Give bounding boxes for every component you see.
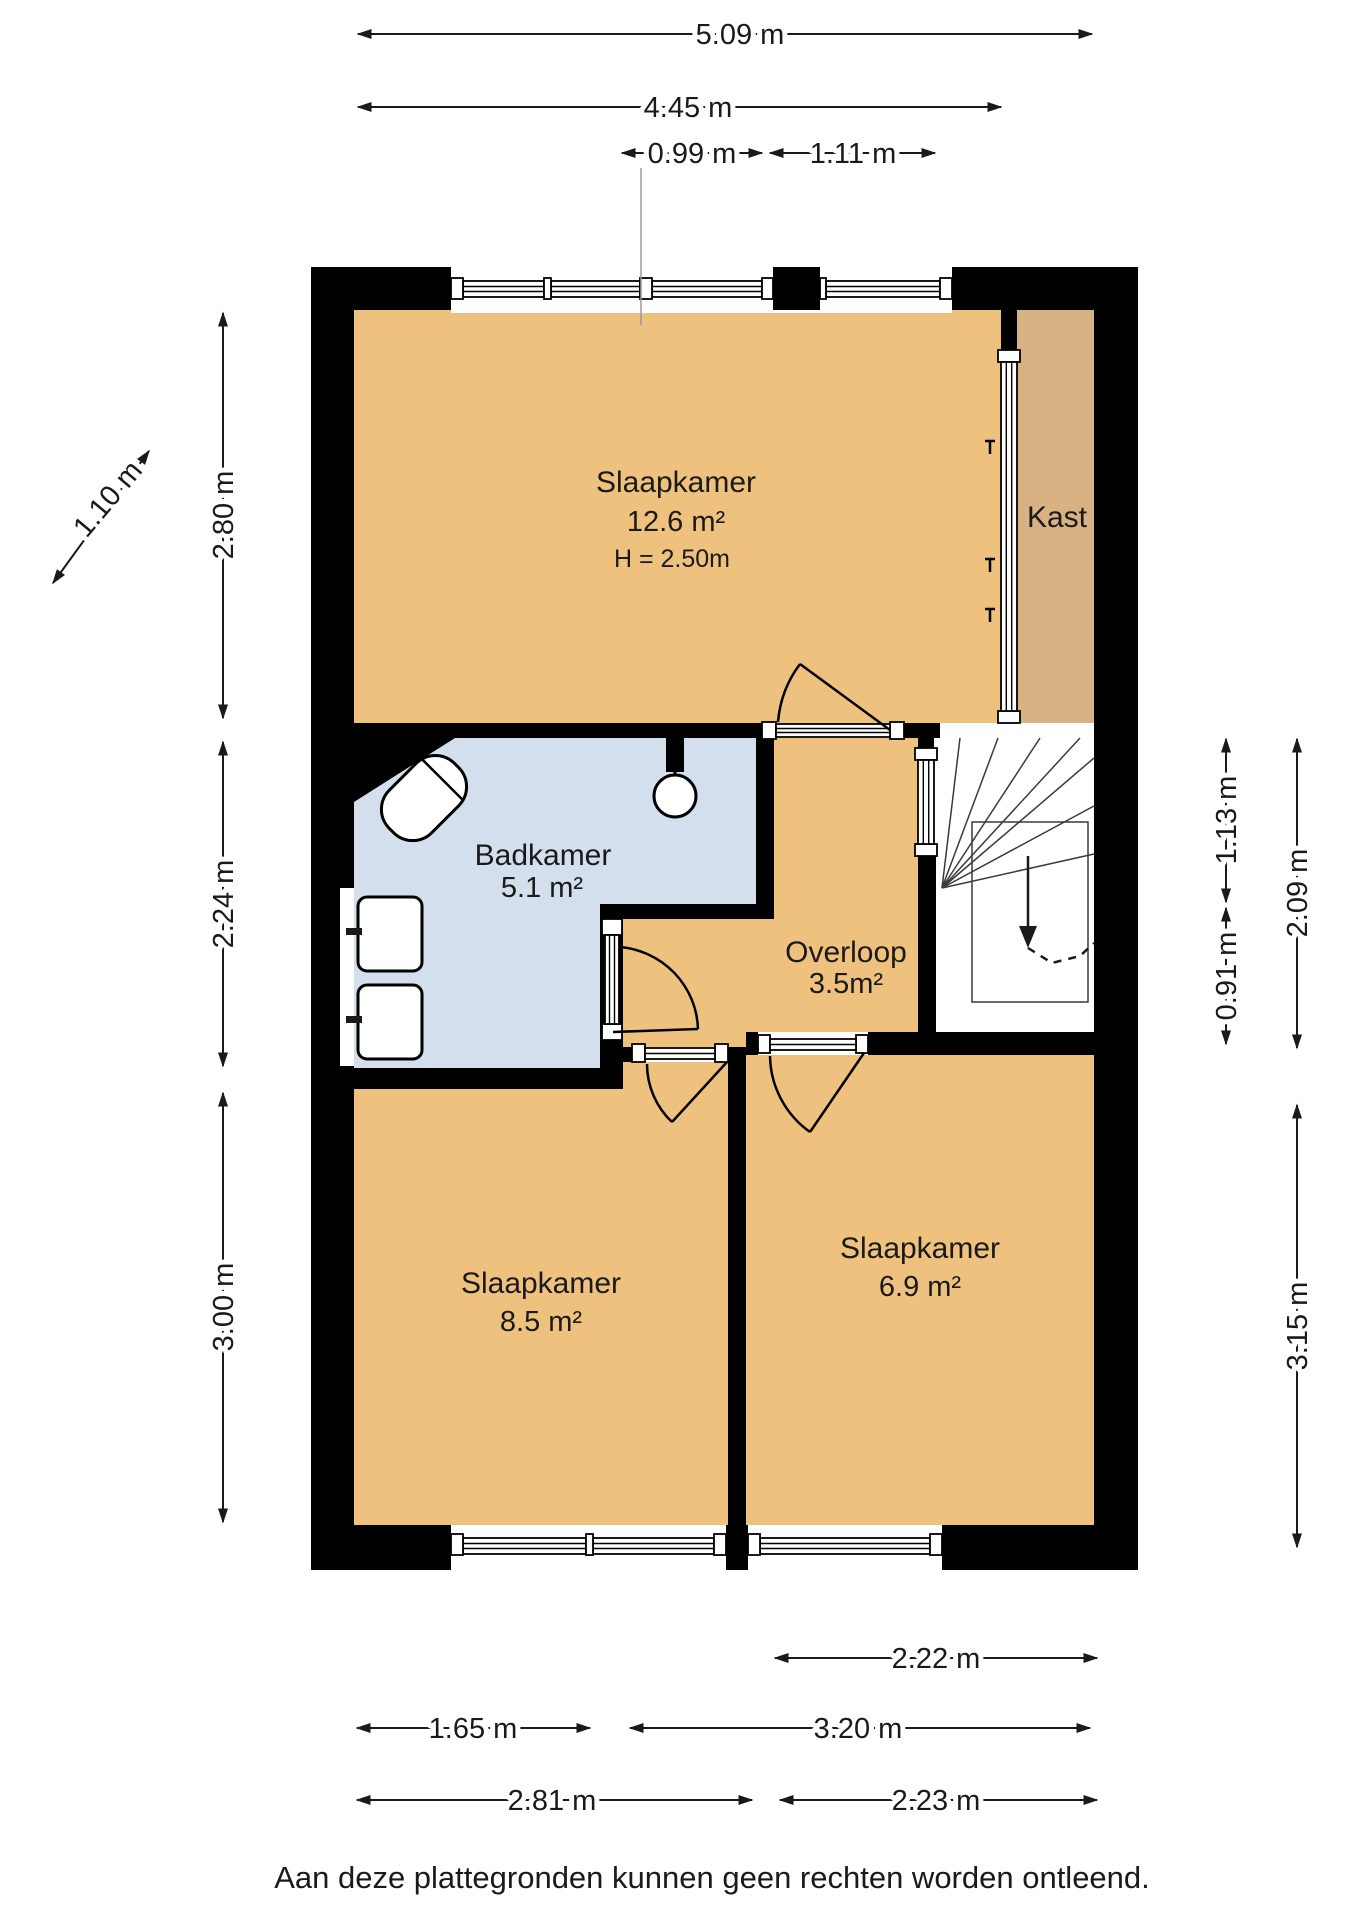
dimensions-top: 5.09 m 4.45 m 0.99 m 1.11 m (358, 19, 1092, 170)
floorplan-page: 5.09 m 4.45 m 0.99 m 1.11 m 2.80 m 2.24 … (0, 0, 1358, 1920)
top-window-band (451, 267, 952, 313)
floorplan-drawing: 5.09 m 4.45 m 0.99 m 1.11 m 2.80 m 2.24 … (0, 0, 1358, 1920)
dim-315: 3.15 m (1282, 1282, 1314, 1371)
dim-224: 2.24 m (208, 860, 240, 949)
dim-280: 2.80 m (208, 471, 240, 560)
wall-bathroom-jog (600, 904, 774, 919)
dimensions-left: 2.80 m 2.24 m 3.00 m 1.10 m (53, 313, 240, 1522)
area-slaapkamer-69: 6.9 m² (879, 1271, 962, 1303)
wall-mid-right (904, 723, 940, 738)
dimensions-bottom: 2.22 m 1.65 m 3.20 m 2.81 m 2.23 m (357, 1643, 1097, 1817)
label-overloop: Overloop (785, 936, 907, 969)
wall-bedroom-divider (728, 1047, 746, 1525)
area-badkamer: 5.1 m² (501, 872, 584, 904)
dim-091: 0.91 m (1211, 932, 1243, 1021)
dim-509: 5.09 m (696, 19, 785, 51)
wall-bathroom-bottom (311, 1068, 623, 1089)
dim-113: 1.13 m (1211, 776, 1243, 865)
shower-head (654, 775, 696, 817)
dim-222: 2.22 m (892, 1643, 981, 1675)
washbasin-1 (346, 897, 422, 971)
label-slaapkamer-85: Slaapkamer (461, 1267, 621, 1300)
dim-320: 3.20 m (814, 1713, 903, 1745)
dim-111: 1.11 m (810, 138, 897, 170)
dim-223: 2.23 m (892, 1785, 981, 1817)
dim-281: 2.81 m (508, 1785, 597, 1817)
disclaimer-text: Aan deze plattegronden kunnen geen recht… (274, 1860, 1150, 1895)
dim-300: 3.00 m (208, 1263, 240, 1352)
bottom-window-left (451, 1525, 726, 1570)
wall-stair-partition-top (918, 738, 934, 748)
stair-glazed-partition (915, 748, 937, 856)
area-overloop: 3.5m² (809, 968, 883, 1000)
wall-right (1094, 267, 1138, 1570)
label-slaapkamer-69: Slaapkamer (840, 1232, 1000, 1265)
wall-under-stairs (868, 1032, 1094, 1055)
wall-top-left-corner (311, 267, 451, 310)
area-slaapkamer-126: 12.6 m² (627, 506, 726, 538)
wall-bathroom-right (756, 738, 774, 904)
dim-445: 4.45 m (644, 92, 733, 124)
stairs-walkline (1028, 943, 1094, 963)
label-kast: Kast (1027, 501, 1088, 534)
label-slaapkamer-126: Slaapkamer (596, 466, 756, 499)
dim-099: 0.99 m (648, 138, 737, 170)
stairwell-opening (972, 822, 1088, 1002)
label-badkamer: Badkamer (475, 839, 612, 872)
staircase (942, 738, 1094, 1002)
dimensions-right: 1.13 m 0.91 m 2.09 m 3.15 m (1211, 739, 1314, 1547)
dim-165: 1.65 m (429, 1713, 518, 1745)
wall-kast-stub (1001, 310, 1017, 350)
wall-top-right (952, 267, 1138, 310)
wall-mid-left (311, 723, 762, 738)
wall-shower-stub (666, 738, 684, 772)
area-slaapkamer-85: 8.5 m² (500, 1306, 583, 1338)
dim-209: 2.09 m (1282, 849, 1314, 938)
dim-110: 1.10 m (67, 455, 149, 543)
washbasin-niche (340, 888, 354, 1066)
wall-stair-partition-bottom (918, 856, 936, 1032)
bottom-window-right (726, 1525, 942, 1570)
wall-door69-stub-left (746, 1032, 758, 1055)
wall-door85-stub (623, 1047, 632, 1062)
washbasin-2 (346, 985, 422, 1059)
ceiling-slaapkamer-126: H = 2.50m (614, 545, 730, 573)
